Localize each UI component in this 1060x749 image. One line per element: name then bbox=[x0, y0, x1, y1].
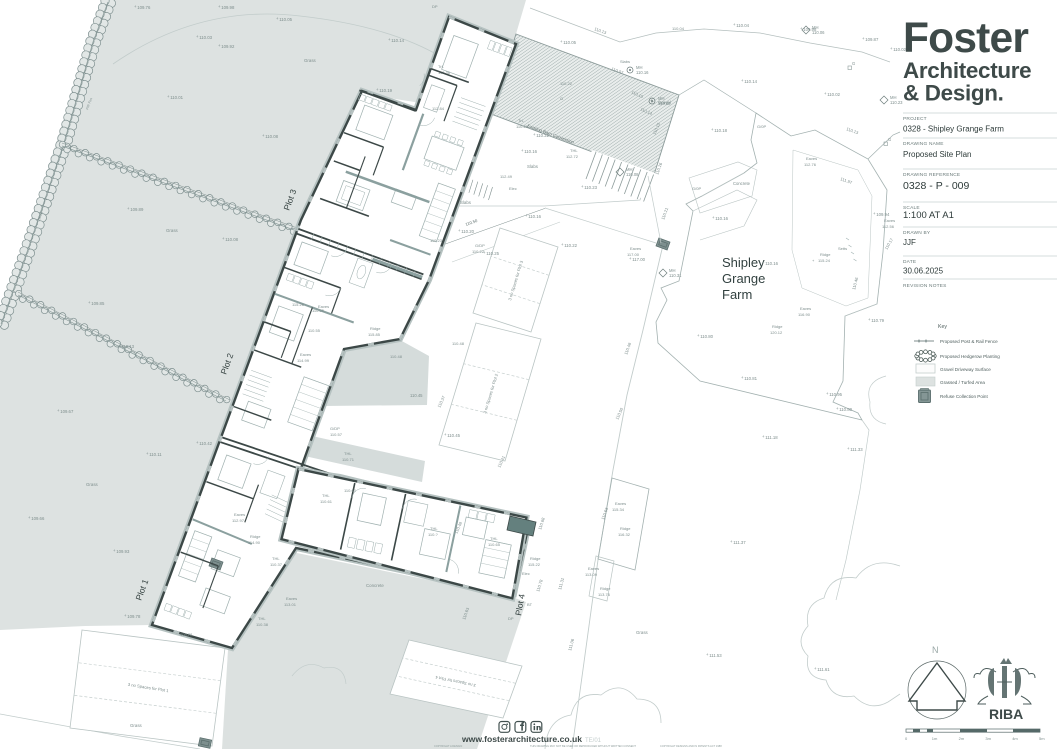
svg-text:110.08: 110.08 bbox=[626, 172, 639, 177]
svg-text:Grass: Grass bbox=[166, 228, 179, 233]
svg-text:113.76: 113.76 bbox=[598, 592, 611, 597]
svg-text:THL: THL bbox=[344, 451, 352, 456]
svg-text:Concrete: Concrete bbox=[733, 181, 751, 186]
svg-text:Concrete: Concrete bbox=[366, 583, 384, 588]
svg-text:116.90: 116.90 bbox=[798, 312, 811, 317]
svg-text:110.22: 110.22 bbox=[560, 81, 573, 86]
svg-text:109.76: 109.76 bbox=[137, 5, 151, 10]
svg-text:Eaves: Eaves bbox=[286, 596, 297, 601]
svg-text:Grange: Grange bbox=[722, 271, 765, 286]
svg-text:Ridge: Ridge bbox=[620, 526, 631, 531]
svg-text:Proposed Hedgerow Planting: Proposed Hedgerow Planting bbox=[940, 354, 1000, 359]
svg-text:Eaves: Eaves bbox=[884, 218, 895, 223]
svg-text:109.93: 109.93 bbox=[116, 549, 130, 554]
svg-text:110.16: 110.16 bbox=[765, 261, 778, 266]
svg-text:110.14: 110.14 bbox=[744, 79, 757, 84]
svg-text:Proposed Site Plan: Proposed Site Plan bbox=[903, 150, 972, 159]
svg-text:110.42: 110.42 bbox=[199, 441, 212, 446]
svg-text:G: G bbox=[560, 96, 563, 101]
svg-text:109.78: 109.78 bbox=[127, 614, 141, 619]
svg-text:G/0P: G/0P bbox=[692, 186, 701, 191]
svg-text:0328 - P - 009: 0328 - P - 009 bbox=[903, 180, 970, 192]
svg-text:110.16: 110.16 bbox=[528, 214, 541, 219]
svg-text:Eaves: Eaves bbox=[318, 304, 329, 309]
svg-text:110.55: 110.55 bbox=[308, 328, 321, 333]
svg-text:115.24: 115.24 bbox=[818, 258, 831, 263]
svg-text:Eaves: Eaves bbox=[615, 501, 626, 506]
svg-text:Gravel Driveway Surface: Gravel Driveway Surface bbox=[940, 367, 991, 372]
svg-text:110.79: 110.79 bbox=[871, 318, 884, 323]
svg-text:Eaves: Eaves bbox=[806, 156, 817, 161]
svg-text:110.11: 110.11 bbox=[149, 452, 162, 457]
svg-text:Elec: Elec bbox=[522, 571, 530, 576]
svg-text:110.71: 110.71 bbox=[342, 457, 355, 462]
svg-text:111.53: 111.53 bbox=[709, 653, 722, 658]
svg-text:109.92: 109.92 bbox=[221, 44, 235, 49]
svg-text:RIBA: RIBA bbox=[989, 706, 1023, 722]
svg-text:110.57: 110.57 bbox=[330, 432, 343, 437]
svg-text:120.12: 120.12 bbox=[770, 330, 783, 335]
svg-text:G: G bbox=[852, 61, 855, 66]
svg-text:COPYRIGHT A DESIGN: COPYRIGHT A DESIGN bbox=[434, 744, 462, 748]
svg-text:115.22: 115.22 bbox=[528, 562, 541, 567]
svg-text:110.18: 110.18 bbox=[714, 128, 727, 133]
svg-text:DRAWING NAME: DRAWING NAME bbox=[903, 141, 944, 147]
svg-text:112.76: 112.76 bbox=[804, 162, 817, 167]
svg-text:113.09: 113.09 bbox=[585, 572, 598, 577]
svg-text:110.23: 110.23 bbox=[584, 185, 597, 190]
svg-text:110.61: 110.61 bbox=[320, 499, 333, 504]
svg-text:110.23: 110.23 bbox=[890, 100, 903, 105]
svg-text:DRAWN BY: DRAWN BY bbox=[903, 230, 931, 236]
svg-text:Grass: Grass bbox=[86, 482, 99, 487]
svg-text:111.33: 111.33 bbox=[850, 447, 863, 452]
svg-text:110.80: 110.80 bbox=[839, 407, 852, 412]
svg-text:114.90: 114.90 bbox=[248, 540, 261, 545]
svg-text:112.97: 112.97 bbox=[232, 518, 245, 523]
svg-text:110.22: 110.22 bbox=[564, 243, 577, 248]
svg-text:2m: 2m bbox=[959, 736, 965, 741]
svg-text:G/0P: G/0P bbox=[757, 124, 766, 129]
svg-text:109.85: 109.85 bbox=[91, 301, 105, 306]
svg-text:Farm: Farm bbox=[722, 287, 752, 302]
svg-text:110.03: 110.03 bbox=[199, 35, 212, 40]
svg-text:116.32: 116.32 bbox=[618, 532, 631, 537]
svg-text:DP: DP bbox=[432, 4, 438, 9]
svg-text:JJF: JJF bbox=[903, 238, 916, 247]
svg-text:3m: 3m bbox=[985, 736, 991, 741]
svg-text:110.08: 110.08 bbox=[265, 134, 278, 139]
svg-text:Slabs: Slabs bbox=[620, 59, 630, 64]
svg-text:111.18: 111.18 bbox=[765, 435, 778, 440]
svg-text:Ridge: Ridge bbox=[772, 324, 783, 329]
svg-text:1m: 1m bbox=[932, 736, 938, 741]
svg-text:N: N bbox=[932, 645, 939, 655]
svg-text:Eaves: Eaves bbox=[630, 246, 641, 251]
svg-text:110.95: 110.95 bbox=[829, 392, 842, 397]
svg-text:110.37: 110.37 bbox=[270, 562, 283, 567]
svg-text:Setts: Setts bbox=[838, 246, 847, 251]
svg-text:Grass: Grass bbox=[130, 723, 143, 728]
svg-text:DP: DP bbox=[508, 616, 514, 621]
svg-text:109.98: 109.98 bbox=[803, 27, 817, 32]
svg-text:110.05: 110.05 bbox=[563, 40, 576, 45]
svg-text:110.20: 110.20 bbox=[461, 229, 474, 234]
svg-text:Ridge: Ridge bbox=[370, 326, 381, 331]
svg-text:TE/01: TE/01 bbox=[585, 738, 602, 744]
svg-text:109.87: 109.87 bbox=[865, 37, 879, 42]
svg-text:Eaves: Eaves bbox=[234, 512, 245, 517]
svg-text:THL: THL bbox=[570, 148, 578, 153]
svg-text:G/DP: G/DP bbox=[330, 426, 340, 431]
svg-text:110.16: 110.16 bbox=[636, 70, 649, 75]
svg-text:110.45: 110.45 bbox=[410, 393, 423, 398]
svg-text:THL: THL bbox=[322, 493, 330, 498]
svg-text:115.26: 115.26 bbox=[292, 302, 305, 307]
svg-text:111.61: 111.61 bbox=[817, 667, 830, 672]
svg-text:110.14: 110.14 bbox=[391, 38, 404, 43]
svg-text:Ridge: Ridge bbox=[250, 534, 261, 539]
svg-text:THL: THL bbox=[430, 526, 438, 531]
svg-text:Gravel: Gravel bbox=[658, 100, 671, 105]
svg-text:112.56: 112.56 bbox=[882, 224, 895, 229]
svg-text:110.04: 110.04 bbox=[672, 26, 685, 31]
svg-text:DRAWING REFERENCE: DRAWING REFERENCE bbox=[903, 172, 960, 178]
svg-text:4m: 4m bbox=[1012, 736, 1018, 741]
svg-text:109.94: 109.94 bbox=[876, 212, 890, 217]
svg-text:110.38: 110.38 bbox=[256, 622, 269, 627]
svg-text:110.23: 110.23 bbox=[430, 238, 443, 243]
svg-text:Grassed / Turfed Area: Grassed / Turfed Area bbox=[940, 380, 985, 385]
svg-text:G/DP: G/DP bbox=[475, 243, 485, 248]
svg-text:TrL: TrL bbox=[438, 64, 445, 69]
svg-text:111.37: 111.37 bbox=[733, 540, 746, 545]
svg-text:110.48: 110.48 bbox=[452, 341, 465, 346]
svg-text:110.16: 110.16 bbox=[715, 216, 728, 221]
svg-text:117.00: 117.00 bbox=[632, 257, 645, 262]
svg-text:Eaves: Eaves bbox=[800, 306, 811, 311]
svg-text:Eaves: Eaves bbox=[588, 566, 599, 571]
svg-text:115.85: 115.85 bbox=[368, 332, 381, 337]
svg-text:Ridge: Ridge bbox=[820, 252, 831, 257]
svg-text:110.16: 110.16 bbox=[524, 149, 537, 154]
svg-text:Architecture: Architecture bbox=[903, 58, 1031, 83]
svg-text:THL: THL bbox=[490, 536, 498, 541]
svg-text:110.19: 110.19 bbox=[379, 88, 392, 93]
svg-text:30.06.2025: 30.06.2025 bbox=[903, 267, 944, 276]
svg-text:1:100 AT A1: 1:100 AT A1 bbox=[903, 210, 954, 221]
svg-text:117.00: 117.00 bbox=[627, 252, 640, 257]
svg-text:110.45: 110.45 bbox=[447, 433, 460, 438]
svg-text:Elec: Elec bbox=[509, 186, 517, 191]
svg-text:Ridge: Ridge bbox=[600, 586, 611, 591]
svg-text:114.99: 114.99 bbox=[297, 358, 310, 363]
svg-text:Slabs: Slabs bbox=[527, 164, 539, 169]
svg-text:110.02: 110.02 bbox=[827, 92, 840, 97]
svg-text:110.08: 110.08 bbox=[225, 237, 238, 242]
svg-text:Grass: Grass bbox=[304, 58, 317, 63]
svg-text:110.22: 110.22 bbox=[536, 133, 549, 138]
svg-text:Ridge: Ridge bbox=[530, 556, 541, 561]
svg-text:110.25: 110.25 bbox=[486, 251, 499, 256]
svg-text:110.31: 110.31 bbox=[669, 273, 682, 278]
svg-text:Slabs: Slabs bbox=[460, 200, 472, 205]
svg-text:110.60: 110.60 bbox=[344, 488, 357, 493]
svg-text:110.01: 110.01 bbox=[170, 95, 183, 100]
svg-text:110.29: 110.29 bbox=[516, 124, 529, 129]
svg-text:0328 - Shipley Grange Farm: 0328 - Shipley Grange Farm bbox=[903, 125, 1004, 134]
svg-text:109.78: 109.78 bbox=[180, 632, 193, 637]
svg-text:110.22: 110.22 bbox=[472, 249, 485, 254]
svg-text:5m: 5m bbox=[1039, 736, 1045, 741]
svg-text:PROJECT: PROJECT bbox=[903, 116, 927, 122]
svg-text:Foster: Foster bbox=[903, 15, 1028, 62]
svg-text:THL: THL bbox=[272, 556, 280, 561]
svg-text:113.01: 113.01 bbox=[284, 602, 297, 607]
svg-text:Grass: Grass bbox=[636, 630, 649, 635]
svg-text:110.65: 110.65 bbox=[488, 542, 501, 547]
svg-text:BT: BT bbox=[527, 602, 533, 607]
svg-text:110.81: 110.81 bbox=[744, 376, 757, 381]
svg-text:110.48: 110.48 bbox=[390, 354, 403, 359]
svg-text:THL: THL bbox=[258, 616, 266, 621]
svg-text:109.67: 109.67 bbox=[60, 409, 74, 414]
svg-text:www.fosterarchitecture.co.uk: www.fosterarchitecture.co.uk bbox=[461, 734, 582, 744]
svg-text:COPYRIGHT DESIGNS AND IN PATEN: COPYRIGHT DESIGNS AND IN PATENTS ACT 198… bbox=[660, 744, 722, 748]
svg-text:& Design.: & Design. bbox=[903, 81, 1004, 106]
svg-text:112.72: 112.72 bbox=[566, 154, 579, 159]
svg-text:110.13: 110.13 bbox=[121, 344, 134, 349]
svg-text:112.84: 112.84 bbox=[432, 106, 445, 111]
svg-text:110.?: 110.? bbox=[428, 532, 438, 537]
svg-text:110.04: 110.04 bbox=[736, 23, 749, 28]
svg-text:109.98: 109.98 bbox=[221, 5, 235, 10]
svg-text:Key: Key bbox=[938, 324, 947, 330]
svg-text:THIS DRAWING MAY NOT BE USED O: THIS DRAWING MAY NOT BE USED OR REPRODUC… bbox=[530, 744, 636, 748]
svg-text:G: G bbox=[888, 137, 891, 142]
svg-text:Refuse Collection Point: Refuse Collection Point bbox=[940, 394, 988, 399]
svg-text:Proposed Post & Rail Fence: Proposed Post & Rail Fence bbox=[940, 339, 998, 344]
svg-text:112.49: 112.49 bbox=[500, 174, 513, 179]
svg-text:115.34: 115.34 bbox=[612, 507, 625, 512]
svg-text:Eaves: Eaves bbox=[300, 352, 311, 357]
svg-text:109.89: 109.89 bbox=[130, 207, 144, 212]
svg-text:REVISION NOTES: REVISION NOTES bbox=[903, 283, 947, 289]
svg-text:110.80: 110.80 bbox=[700, 334, 713, 339]
svg-text:DATE: DATE bbox=[903, 259, 916, 265]
svg-text:Shipley: Shipley bbox=[722, 255, 765, 270]
svg-text:110.05: 110.05 bbox=[279, 17, 292, 22]
svg-text:109.66: 109.66 bbox=[31, 516, 45, 521]
svg-text:TrL: TrL bbox=[518, 118, 525, 123]
